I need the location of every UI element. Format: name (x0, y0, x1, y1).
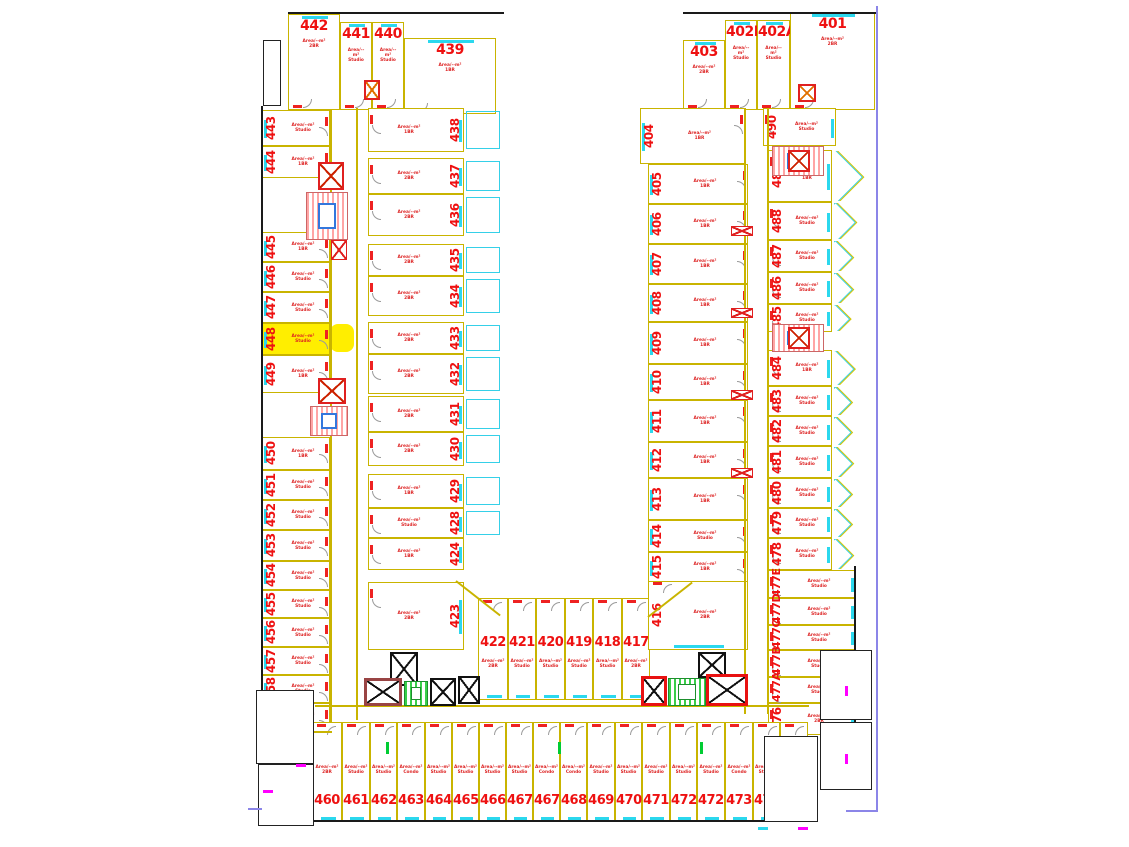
unit-433[interactable]: 433Area/--m² 2BR (368, 322, 464, 354)
door-swing-arc (734, 125, 743, 134)
unit-area-label: Area/--m² Studio (286, 541, 321, 551)
unit-number: 408 (650, 285, 664, 321)
unit-number: 421 (509, 635, 535, 650)
unit-435[interactable]: 435Area/--m² 2BR (368, 244, 464, 276)
door-swing-arc (372, 293, 381, 302)
balcony (466, 247, 500, 273)
door-tick (370, 403, 373, 412)
wall-line (288, 12, 504, 14)
unit-number: 481 (770, 447, 784, 477)
unit-area-label: Area/--m² Studio (452, 765, 479, 775)
unit-490[interactable]: 490Area/--m² Studio (763, 108, 836, 146)
door-tick (457, 724, 466, 727)
unit-number: 429 (448, 475, 462, 507)
unit-409[interactable]: 409Area/--m² 1BR (648, 322, 748, 364)
unit-area-label: Area/--m² Studio (508, 659, 535, 669)
unit-number: 405 (650, 165, 664, 203)
unit-453[interactable]: 453Area/--m² Studio (262, 530, 330, 561)
unit-452[interactable]: 452Area/--m² Studio (262, 500, 330, 530)
door-tick (513, 600, 522, 603)
unit-462[interactable]: Area/--m² Studio462 (370, 722, 397, 822)
unit-number: 407 (650, 245, 664, 283)
unit-471[interactable]: Area/--m² Studio471 (642, 722, 670, 822)
unit-472B[interactable]: Area/--m² Studio472B (697, 722, 725, 822)
corridor-line (744, 108, 746, 714)
door-swing-arc (548, 726, 557, 735)
unit-number: 479 (770, 509, 784, 537)
unit-468[interactable]: Area/--m² Condo468 (560, 722, 587, 822)
unit-number: 483 (770, 387, 784, 415)
unit-436[interactable]: 436Area/--m² 2BR (368, 194, 464, 236)
unit-area-label: Area/--m² Studio (536, 659, 564, 669)
boundary-line (248, 808, 262, 810)
unit-area-label: Area/--m² 1BR (418, 63, 483, 73)
unit-457[interactable]: 457Area/--m² Studio (262, 647, 330, 675)
unit-415[interactable]: 415Area/--m² 1BR (648, 552, 748, 582)
balcony (834, 203, 866, 239)
unit-429[interactable]: 429Area/--m² 1BR (368, 474, 464, 508)
unit-446[interactable]: 446Area/--m² Studio (262, 262, 330, 292)
unit-area-label: Area/--m² Condo (725, 765, 752, 775)
door-swing-arc (319, 578, 328, 587)
door-tick (541, 600, 550, 603)
balcony (834, 273, 866, 303)
balcony-chevron (834, 151, 863, 201)
unit-447[interactable]: 447Area/--m² Studio (262, 292, 330, 323)
unit-area-label: Area/--m² Studio (593, 659, 621, 669)
unit-464[interactable]: Area/--m² Studio464 (425, 722, 452, 822)
door-swing-arc (372, 175, 381, 184)
unit-number: 435 (448, 245, 462, 275)
unit-number: 453 (264, 531, 278, 560)
unit-number: 420 (537, 635, 564, 650)
unit-455[interactable]: 455Area/--m² Studio (262, 590, 330, 618)
door-swing-arc (372, 339, 381, 348)
window-tick (827, 312, 830, 326)
door-tick (375, 724, 384, 727)
window-tick (827, 517, 830, 532)
unit-number: 449 (264, 356, 278, 392)
unit-area-label: Area/--m² 2BR (479, 659, 508, 669)
unit-area-label: Area/--m² Studio (587, 765, 614, 775)
window-tick (487, 695, 502, 698)
door-swing-arc (657, 726, 666, 735)
corner-room (256, 690, 314, 764)
door-swing-arc (494, 726, 503, 735)
unit-450[interactable]: 450Area/--m² 1BR (262, 437, 330, 470)
unit-area-label: Area/--m² 2BR (382, 611, 437, 621)
door-tick (740, 115, 743, 124)
unit-area-label: Area/--m² 2BR (296, 39, 332, 49)
unit-area-label: Area/--m² Studio (791, 518, 823, 528)
unit-number: 456 (264, 619, 278, 646)
unit-area-label: Area/--m² Studio (762, 46, 784, 61)
unit-number: 436 (448, 195, 462, 235)
unit-466[interactable]: Area/--m² Studio466 (479, 722, 506, 822)
window-tick (263, 790, 273, 793)
unit-area-label: Area/--m² 1BR (382, 125, 437, 135)
unit-area-label: Area/--m² 2BR (382, 409, 437, 419)
balcony (834, 539, 866, 569)
unit-area-label: Area/--m² 2BR (382, 210, 437, 220)
balcony (466, 111, 500, 149)
unit-402A[interactable]: 402AArea/--m² Studio (757, 20, 790, 110)
door-swing-arc (372, 261, 381, 270)
door-swing-arc (372, 449, 381, 458)
balcony (834, 417, 866, 445)
door-swing-arc (372, 491, 381, 500)
unit-number: 455 (264, 591, 278, 617)
corridor-line (767, 108, 769, 714)
balcony-chevron (834, 447, 852, 477)
door-tick (511, 724, 520, 727)
unit-area-label: Area/--m² 1BR (286, 242, 321, 252)
door-tick (758, 724, 767, 727)
unit-area-label: Area/--m² Studio (286, 628, 321, 638)
door-swing-arc (355, 99, 364, 108)
unit-number: 452 (264, 501, 278, 529)
unit-number: 437 (448, 159, 462, 193)
door-swing-arc (319, 309, 328, 318)
unit-465[interactable]: Area/--m² Studio465 (452, 722, 479, 822)
wall-line (683, 12, 876, 14)
unit-479[interactable]: 479Area/--m² Studio (768, 508, 832, 538)
unit-number: 417 (623, 635, 649, 650)
balcony (834, 351, 866, 385)
door-swing-arc (319, 664, 328, 673)
unit-484[interactable]: 484Area/--m² 1BR (768, 350, 832, 386)
door-swing-arc (630, 726, 639, 735)
unit-area-label: Area/--m² Studio (791, 313, 823, 323)
door-swing-arc (685, 726, 694, 735)
unit-area-label: Area/--m² 2BR (382, 444, 437, 454)
unit-area-label: Area/--m² 1BR (286, 369, 321, 379)
unit-area-label: Area/--m² Studio (787, 122, 825, 132)
unit-number: 442 (289, 18, 339, 34)
door-tick (370, 329, 373, 338)
unit-416[interactable]: 416Area/--m² 2BR (648, 580, 748, 650)
unit-number: 467A (507, 793, 532, 808)
corner-room (820, 650, 872, 720)
unit-number: 471 (643, 793, 669, 808)
window-tick (827, 281, 830, 297)
window-tick (827, 164, 830, 190)
corner-room (764, 736, 818, 822)
door-tick (347, 724, 356, 727)
window-tick (827, 425, 830, 440)
door-swing-arc (372, 555, 381, 564)
balcony (466, 197, 500, 233)
unit-478[interactable]: 478Area/--m² Studio (768, 538, 832, 570)
unit-430[interactable]: 430Area/--m² 2BR (368, 432, 464, 466)
unit-488[interactable]: 488Area/--m² Studio (768, 202, 832, 240)
door-swing-arc (412, 726, 421, 735)
unit-472A[interactable]: Area/--m² Studio472A (670, 722, 697, 822)
unit-area-label: Area/--m² Studio (425, 765, 452, 775)
door-swing-arc (319, 127, 328, 136)
unit-428[interactable]: 428Area/--m² Studio (368, 508, 464, 538)
elevator-shaft (788, 327, 810, 349)
service-shaft (331, 240, 347, 260)
unit-482[interactable]: 482Area/--m² Studio (768, 416, 832, 446)
unit-area-label: Area/--m² 2BR (313, 765, 342, 775)
unit-area-label: Area/--m² 1BR (676, 298, 734, 308)
unit-area-label: Area/--m² Studio (791, 488, 823, 498)
door-tick (325, 682, 328, 691)
unit-number: 431 (448, 397, 462, 431)
elevator-shaft (364, 678, 402, 706)
balcony (834, 241, 866, 271)
unit-470[interactable]: Area/--m² Studio470 (615, 722, 642, 822)
elevator-shaft (318, 162, 344, 190)
unit-461[interactable]: Area/--m² Studio461 (342, 722, 370, 822)
door-swing-arc (319, 692, 328, 701)
unit-451[interactable]: 451Area/--m² Studio (262, 470, 330, 500)
window-tick (827, 395, 830, 410)
window-tick (827, 249, 830, 265)
unit-448[interactable]: 448Area/--m² Studio (262, 323, 330, 355)
unit-number: 419 (566, 635, 592, 650)
window-tick (845, 754, 848, 764)
window-tick (601, 695, 616, 698)
unit-406[interactable]: 406Area/--m² 1BR (648, 204, 748, 244)
window-tick (544, 695, 559, 698)
door-tick (647, 724, 656, 727)
unit-area-label: Area/--m² Studio (506, 765, 533, 775)
door-tick (370, 361, 373, 370)
unit-456[interactable]: 456Area/--m² Studio (262, 618, 330, 647)
unit-443[interactable]: 443Area/--m² Studio (262, 110, 330, 146)
unit-487[interactable]: 487Area/--m² Studio (768, 240, 832, 272)
door-swing-arc (319, 547, 328, 556)
unit-number: 410 (650, 365, 664, 399)
unit-number: 477C (770, 626, 783, 649)
unit-area-label: Area/--m² Studio (791, 549, 823, 559)
unit-number: 412 (650, 443, 664, 477)
door-tick (345, 105, 354, 108)
door-swing-arc (372, 599, 381, 608)
unit-number: 473 (726, 793, 752, 808)
unit-467A[interactable]: Area/--m² Studio467A (506, 722, 533, 822)
unit-number: 488 (770, 203, 784, 239)
door-tick (325, 330, 328, 339)
door-tick (293, 105, 302, 108)
unit-402B[interactable]: 402BArea/--m² Studio (725, 20, 757, 110)
door-swing-arc (319, 487, 328, 496)
door-swing-arc (319, 635, 328, 644)
door-swing-arc (357, 726, 366, 735)
unit-area-label: Area/--m² Studio (286, 599, 321, 609)
window-tick (386, 742, 389, 754)
door-tick (325, 568, 328, 577)
door-tick (484, 724, 493, 727)
door-swing-arc (372, 125, 381, 134)
unit-number: 415 (650, 553, 664, 581)
unit-area-label: Area/--m² 1BR (676, 377, 734, 387)
door-swing-arc (523, 602, 532, 611)
unit-number: 462 (371, 793, 396, 808)
unit-number: 463 (398, 793, 424, 808)
balcony-chevron (834, 479, 851, 507)
unit-473[interactable]: Area/--m² Condo473 (725, 722, 753, 822)
unit-number: 406 (650, 205, 664, 243)
unit-420[interactable]: 420Area/--m² Studio (536, 598, 565, 700)
unit-area-label: Area/--m² 1BR (676, 219, 734, 229)
window-tick (827, 487, 830, 502)
unit-number: 451 (264, 471, 278, 499)
unit-number: 484 (770, 351, 784, 385)
door-swing-arc (575, 726, 584, 735)
unit-486[interactable]: 486Area/--m² Studio (768, 272, 832, 304)
balcony-chevron (834, 387, 851, 415)
floor-plan-canvas: 442Area/--m² 2BR441Area/--m² Studio440Ar… (0, 0, 1129, 847)
unit-439[interactable]: 439Area/--m² 1BR (404, 38, 496, 114)
unit-413[interactable]: 413Area/--m² 1BR (648, 478, 748, 520)
unit-437[interactable]: 437Area/--m² 2BR (368, 158, 464, 194)
window-tick (798, 827, 808, 830)
elevator-shaft (798, 84, 816, 102)
unit-469[interactable]: Area/--m² Studio469 (587, 722, 615, 822)
unit-407[interactable]: 407Area/--m² 1BR (648, 244, 748, 284)
unit-number: 472A (671, 793, 696, 808)
staircase (306, 192, 348, 240)
unit-area-label: Area/--m² Studio (791, 426, 823, 436)
unit-442[interactable]: 442Area/--m² 2BR (288, 14, 340, 110)
unit-area-label: Area/--m² 2BR (690, 65, 719, 75)
unit-area-label: Area/--m² 1BR (676, 416, 734, 426)
unit-number: 469 (588, 793, 614, 808)
unit-403[interactable]: 403Area/--m² 2BR (683, 40, 725, 110)
unit-404[interactable]: 404Area/--m² 1BR (640, 108, 745, 164)
unit-434[interactable]: 434Area/--m² 2BR (368, 276, 464, 316)
door-tick (370, 545, 373, 554)
door-swing-arc (795, 726, 804, 735)
unit-number: 402B (726, 24, 756, 40)
service-shaft (731, 308, 753, 318)
door-tick (785, 724, 794, 727)
unit-423[interactable]: 423Area/--m² 2BR (368, 582, 464, 650)
unit-number: 418 (594, 635, 621, 650)
door-tick (592, 724, 601, 727)
balcony-chevron (834, 417, 851, 445)
window-tick (573, 695, 587, 698)
door-tick (598, 600, 607, 603)
unit-419[interactable]: 419Area/--m² Studio (565, 598, 593, 700)
unit-area-label: Area/--m² 2BR (382, 291, 437, 301)
unit-422[interactable]: 422Area/--m² 2BR (478, 598, 508, 700)
door-tick (325, 654, 328, 663)
unit-area-label: Area/--m² 1BR (382, 549, 437, 559)
unit-number: 454 (264, 562, 278, 589)
door-tick (402, 724, 411, 727)
unit-number: 440 (373, 26, 403, 42)
unit-438[interactable]: 438Area/--m² 1BR (368, 108, 464, 152)
unit-area-label: Area/--m² Studio (382, 518, 437, 528)
balcony (834, 447, 866, 477)
staircase (404, 681, 428, 706)
door-tick (675, 724, 684, 727)
door-tick (570, 600, 579, 603)
unit-number: 401 (791, 16, 874, 32)
balcony-chevron (834, 241, 852, 271)
stair-core-box (321, 413, 337, 429)
unit-418[interactable]: 418Area/--m² Studio (593, 598, 622, 700)
unit-481[interactable]: 481Area/--m² Studio (768, 446, 832, 478)
unit-411[interactable]: 411Area/--m² 1BR (648, 400, 748, 442)
unit-number: 433 (448, 323, 462, 353)
window-tick (674, 645, 724, 648)
door-tick (325, 537, 328, 546)
door-tick (370, 515, 373, 524)
unit-area-label: Area/--m² Studio (791, 251, 823, 261)
unit-463[interactable]: Area/--m² Condo463 (397, 722, 425, 822)
unit-460[interactable]: Area/--m² 2BR460 (312, 722, 342, 822)
stair-core-box (678, 684, 695, 700)
door-swing-arc (602, 726, 611, 735)
unit-area-label: Area/--m² Studio (795, 579, 844, 589)
door-tick (702, 724, 711, 727)
door-swing-arc (521, 726, 530, 735)
unit-405[interactable]: 405Area/--m² 1BR (648, 164, 748, 204)
unit-number: 439 (405, 42, 495, 58)
unit-480[interactable]: 480Area/--m² Studio (768, 478, 832, 508)
door-tick (325, 625, 328, 634)
door-tick (730, 724, 739, 727)
door-tick (325, 507, 328, 516)
unit-number: 445 (264, 233, 278, 261)
unit-number: 460 (313, 793, 341, 808)
unit-area-label: Area/--m² 2BR (382, 255, 437, 265)
unit-number: 411 (650, 401, 664, 441)
unit-number: 434 (448, 277, 462, 315)
unit-number: 447 (264, 293, 278, 322)
balcony (834, 151, 866, 201)
unit-area-label: Area/--m² Studio (286, 272, 321, 282)
unit-432[interactable]: 432Area/--m² 2BR (368, 354, 464, 394)
unit-454[interactable]: 454Area/--m² Studio (262, 561, 330, 590)
unit-467B[interactable]: Area/--m² Condo467B (533, 722, 560, 822)
wall-line (308, 820, 812, 822)
door-tick (620, 724, 629, 727)
door-swing-arc (319, 340, 328, 349)
door-swing-arc (372, 413, 381, 422)
elevator-shaft (430, 678, 456, 706)
door-swing-arc (387, 99, 396, 108)
unit-421[interactable]: 421Area/--m² Studio (508, 598, 536, 700)
unit-area-label: Area/--m² Studio (342, 765, 369, 775)
balcony-chevron (834, 509, 851, 537)
unit-431[interactable]: 431Area/--m² 2BR (368, 396, 464, 432)
window-tick (827, 213, 830, 232)
service-shaft (731, 226, 753, 236)
door-swing-arc (740, 99, 749, 108)
service-shaft (731, 390, 753, 400)
unit-424[interactable]: 424Area/--m² 1BR (368, 538, 464, 570)
unit-number: 486 (770, 273, 784, 303)
unit-414[interactable]: 414Area/--m² Studio (648, 520, 748, 552)
corridor-line (356, 108, 358, 720)
unit-area-label: Area/--m² Studio (370, 765, 397, 775)
door-tick (370, 481, 373, 490)
unit-483[interactable]: 483Area/--m² Studio (768, 386, 832, 416)
unit-area-label: Area/--m² Studio (791, 216, 823, 226)
unit-area-label: Area/--m² 1BR (676, 179, 734, 189)
unit-area-label: Area/--m² Condo (533, 765, 560, 775)
balcony (834, 479, 866, 507)
unit-number: 414 (650, 521, 664, 551)
staircase (310, 406, 348, 436)
highlight-marker (330, 324, 354, 352)
